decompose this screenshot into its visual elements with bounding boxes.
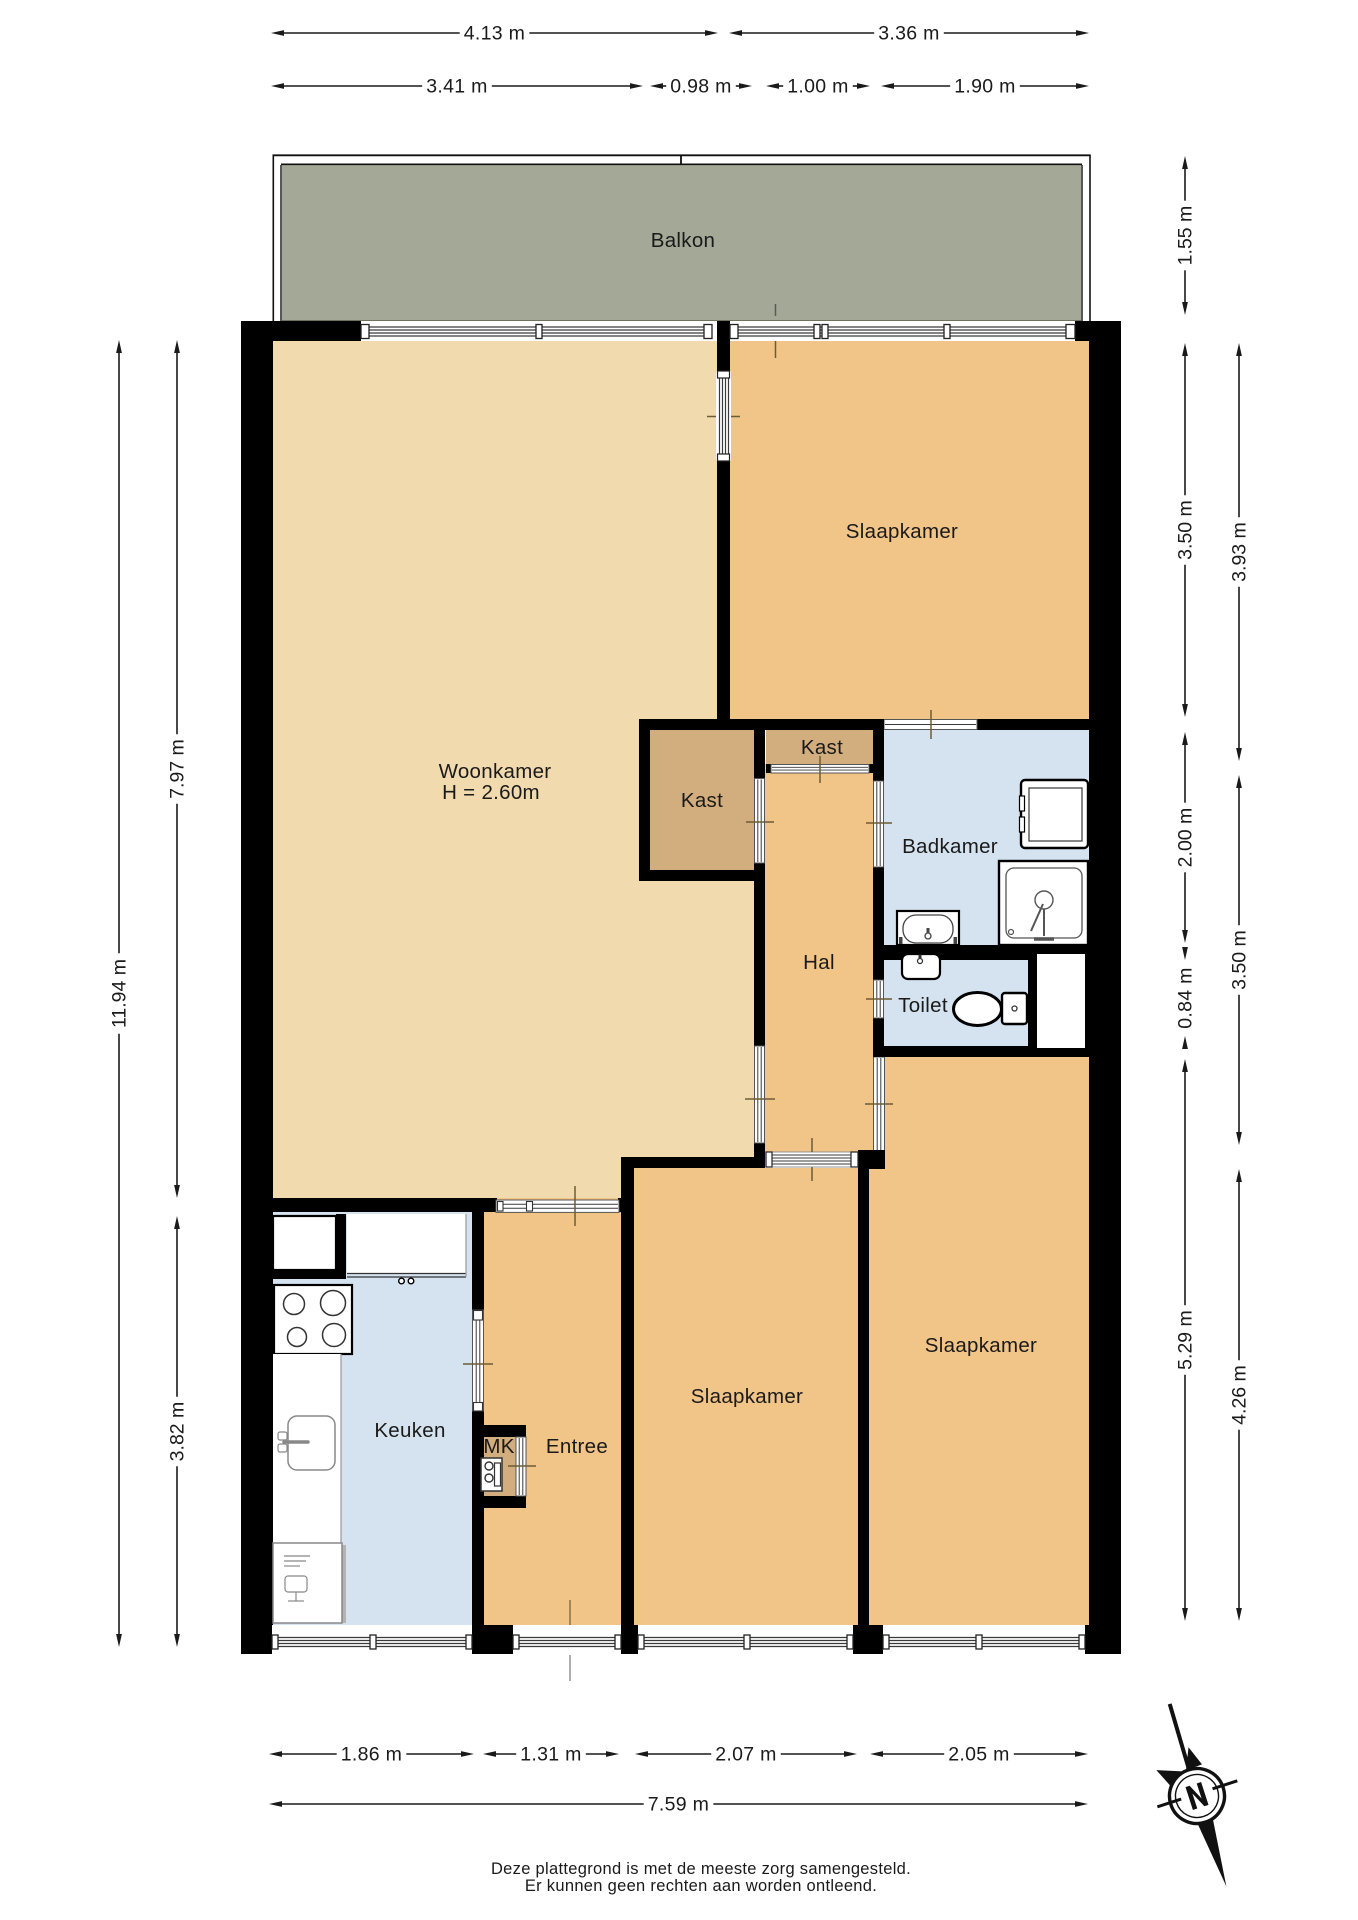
svg-text:Hal: Hal xyxy=(803,951,835,974)
svg-text:Woonkamer: Woonkamer xyxy=(439,760,552,783)
svg-text:1.86 m: 1.86 m xyxy=(341,1744,402,1766)
svg-text:7.59 m: 7.59 m xyxy=(648,1794,709,1816)
svg-text:MK: MK xyxy=(483,1435,514,1458)
svg-text:1.90 m: 1.90 m xyxy=(954,76,1015,98)
svg-text:Er kunnen geen rechten aan wor: Er kunnen geen rechten aan worden ontlee… xyxy=(525,1877,877,1895)
svg-text:Entree: Entree xyxy=(546,1435,608,1458)
svg-text:3.41 m: 3.41 m xyxy=(426,76,487,98)
svg-text:Deze plattegrond is met de mee: Deze plattegrond is met de meeste zorg s… xyxy=(491,1860,911,1878)
svg-text:7.97 m: 7.97 m xyxy=(167,739,189,799)
svg-text:1.00 m: 1.00 m xyxy=(787,76,848,98)
svg-text:Keuken: Keuken xyxy=(374,1419,445,1442)
svg-text:Kast: Kast xyxy=(681,789,723,812)
svg-text:Slaapkamer: Slaapkamer xyxy=(846,520,958,543)
svg-text:4.13 m: 4.13 m xyxy=(464,23,525,45)
svg-text:3.82 m: 3.82 m xyxy=(167,1402,189,1462)
svg-text:3.50 m: 3.50 m xyxy=(1229,930,1251,990)
svg-text:4.26 m: 4.26 m xyxy=(1229,1365,1251,1425)
svg-text:Slaapkamer: Slaapkamer xyxy=(691,1385,803,1408)
svg-text:11.94 m: 11.94 m xyxy=(109,959,131,1028)
svg-text:0.84 m: 0.84 m xyxy=(1175,967,1197,1028)
svg-text:1.55 m: 1.55 m xyxy=(1175,206,1197,266)
svg-text:0.98 m: 0.98 m xyxy=(670,76,731,98)
svg-text:2.07 m: 2.07 m xyxy=(715,1744,776,1766)
svg-text:1.31 m: 1.31 m xyxy=(520,1744,581,1766)
svg-text:Badkamer: Badkamer xyxy=(902,835,998,858)
svg-text:3.93 m: 3.93 m xyxy=(1229,522,1251,582)
svg-text:3.36 m: 3.36 m xyxy=(878,23,939,45)
svg-text:5.29 m: 5.29 m xyxy=(1175,1310,1197,1370)
svg-text:H = 2.60m: H = 2.60m xyxy=(442,781,540,804)
svg-text:2.05 m: 2.05 m xyxy=(948,1744,1009,1766)
svg-text:2.00 m: 2.00 m xyxy=(1175,808,1197,868)
svg-text:Slaapkamer: Slaapkamer xyxy=(925,1334,1037,1357)
svg-text:Toilet: Toilet xyxy=(898,994,948,1017)
svg-text:Balkon: Balkon xyxy=(651,229,715,252)
svg-text:3.50 m: 3.50 m xyxy=(1175,500,1197,560)
svg-text:Kast: Kast xyxy=(801,736,843,759)
